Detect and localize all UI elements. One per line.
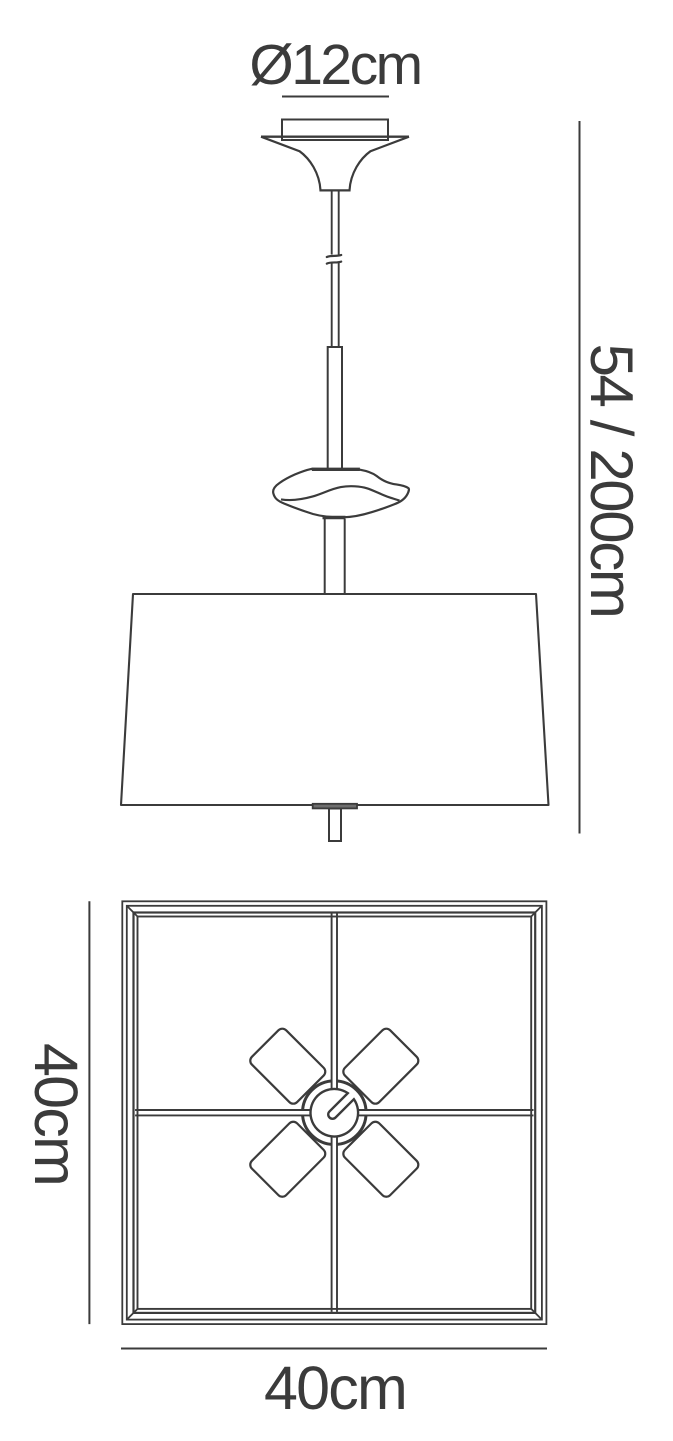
svg-text:40cm: 40cm [22, 1043, 90, 1185]
svg-text:40cm: 40cm [264, 1354, 406, 1422]
svg-text:Ø12cm: Ø12cm [249, 33, 420, 97]
svg-text:54 / 200cm: 54 / 200cm [578, 344, 645, 617]
